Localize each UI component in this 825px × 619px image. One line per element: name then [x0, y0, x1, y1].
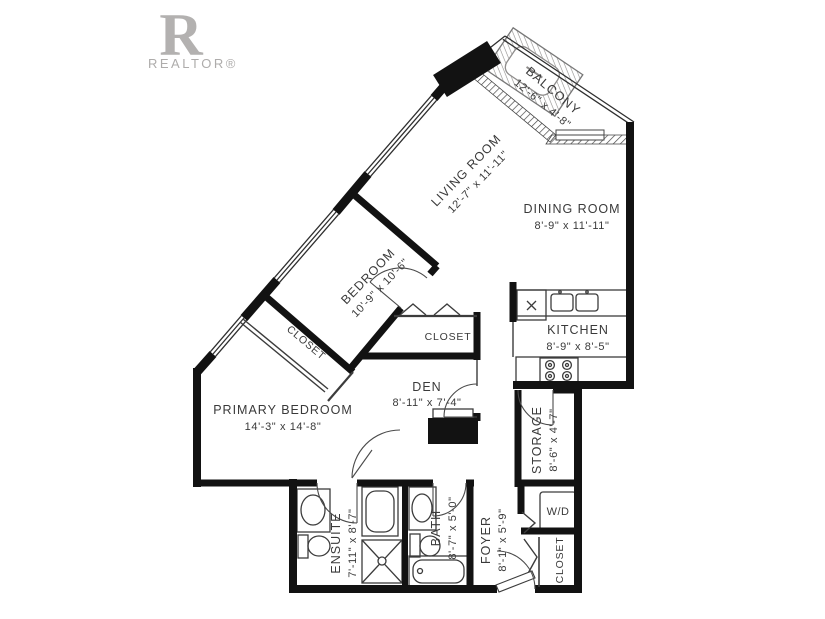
storage-dims: 8'-6" x 4'-7": [548, 408, 560, 471]
primary-bedroom-dims: 14'-3" x 14'-8": [245, 421, 322, 433]
label-washer-dryer: W/D: [547, 506, 570, 518]
logo-wordmark: REALTOR®: [148, 56, 238, 71]
den-closet-name: CLOSET: [425, 331, 472, 343]
foyer-dims: 8'-1" x 5'-9": [497, 508, 509, 571]
foyer-name: FOYER: [479, 516, 493, 564]
dining-room-dims: 8'-9" x 11'-11": [534, 220, 609, 232]
primary-bedroom-name: PRIMARY BEDROOM: [213, 403, 353, 417]
washer-dryer-name: W/D: [547, 506, 570, 518]
kitchen-dims: 8'-9" x 8'-5": [546, 341, 609, 353]
storage-name: STORAGE: [530, 406, 544, 474]
ensuite-dims: 7'-11" x 8'-7": [347, 508, 359, 577]
ensuite-name: ENSUITE: [329, 512, 343, 573]
den-dims: 8'-11" x 7'-4": [392, 397, 461, 409]
bath-dims: 8'-7" x 5'-0": [447, 496, 459, 559]
label-den-closet: CLOSET: [425, 331, 472, 343]
den-name: DEN: [412, 380, 441, 394]
foyer-closet-name: CLOSET: [554, 537, 566, 584]
floorplan-page: R REALTOR®: [0, 0, 825, 619]
bath-name: BATH: [429, 510, 443, 546]
label-foyer-closet: CLOSET: [554, 537, 566, 584]
dining-room-name: DINING ROOM: [523, 202, 620, 216]
floorplan-svg: R REALTOR®: [0, 0, 825, 619]
page-background: [0, 0, 825, 619]
den-desk: [428, 418, 478, 444]
kitchen-name: KITCHEN: [547, 323, 609, 337]
